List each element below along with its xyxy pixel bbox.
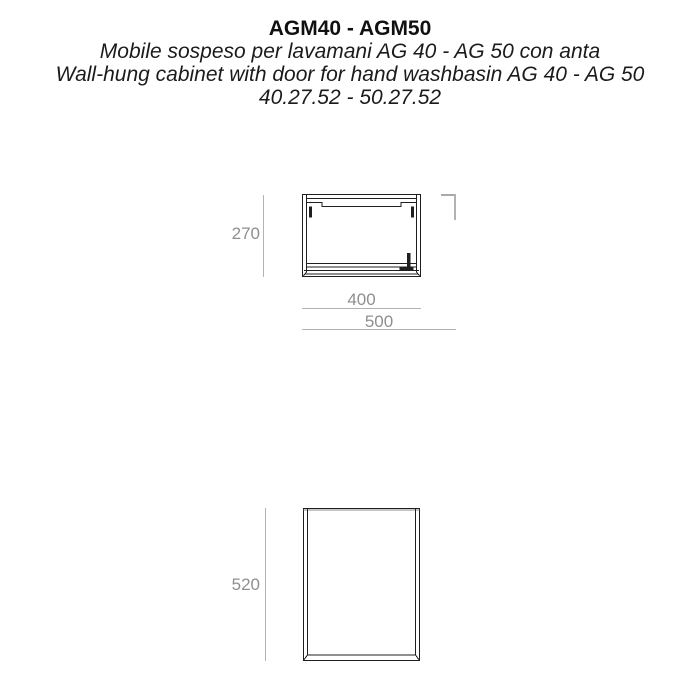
dimension-line-width-400 [302,308,421,309]
front-chamfer-bottom-left [304,655,308,661]
cabinet-front-drawing [303,508,420,661]
dimension-label-height-520: 520 [220,575,260,594]
dimension-label-width-400: 400 [302,290,421,309]
product-codes: 40.27.52 - 50.27.52 [0,86,700,109]
plan-door-hinge-foot [400,268,414,272]
plan-back-rail-notched [307,203,417,207]
plan-door-hinge [407,253,411,267]
dimension-label-depth-270: 270 [220,224,260,243]
plan-bracket-left [309,207,312,218]
header-block: AGM40 - AGM50 Mobile sospeso per lavaman… [0,17,700,109]
plan-bracket-right [411,207,414,218]
dimension-line-width-500 [302,329,456,330]
cabinet-plan-drawing [302,194,421,277]
agm50-extension-corner-mark-vertical [454,194,456,220]
dimension-line-depth [263,195,264,277]
subtitle-english: Wall-hung cabinet with door for hand was… [0,63,700,86]
spec-sheet-page: AGM40 - AGM50 Mobile sospeso per lavaman… [0,0,700,700]
product-title: AGM40 - AGM50 [0,17,700,40]
dimension-line-height [265,508,266,661]
front-chamfer-bottom-right [416,655,420,661]
subtitle-italian: Mobile sospeso per lavamani AG 40 - AG 5… [0,40,700,63]
front-door-outer [304,509,420,661]
